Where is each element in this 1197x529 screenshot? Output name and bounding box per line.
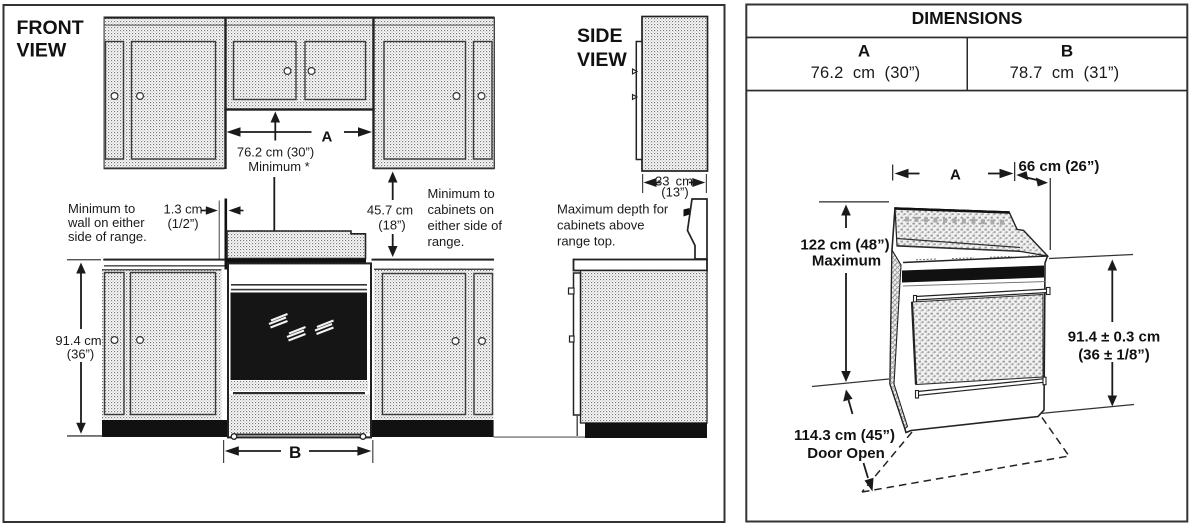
svg-text:76.2 cm (30”): 76.2 cm (30”) [237, 145, 314, 160]
svg-text:45.7 cm: 45.7 cm [367, 203, 413, 218]
svg-text:1.3 cm: 1.3 cm [163, 202, 202, 217]
svg-text:114.3 cm (45”): 114.3 cm (45”) [794, 427, 895, 444]
svg-text:91.4 ± 0.3 cm: 91.4 ± 0.3 cm [1068, 329, 1160, 346]
svg-text:A: A [858, 42, 870, 61]
svg-text:FRONT: FRONT [17, 17, 84, 39]
svg-text:(36”): (36”) [67, 347, 94, 362]
svg-text:range top.: range top. [557, 234, 616, 249]
svg-text:76.2 cm (30”): 76.2 cm (30”) [811, 64, 921, 82]
svg-text:(13”): (13”) [661, 185, 688, 200]
svg-text:78.7 cm (31”): 78.7 cm (31”) [1010, 64, 1120, 82]
svg-text:either side of: either side of [428, 218, 503, 233]
svg-text:66 cm (26”): 66 cm (26”) [1019, 158, 1100, 175]
svg-text:B: B [1061, 42, 1073, 61]
svg-text:Minimum to: Minimum to [68, 201, 135, 216]
svg-text:side of range.: side of range. [68, 229, 147, 244]
svg-text:(36 ± 1/8”): (36 ± 1/8”) [1078, 347, 1150, 364]
svg-text:Maximum depth for: Maximum depth for [557, 202, 669, 217]
svg-text:Door Open: Door Open [807, 445, 885, 462]
svg-text:DIMENSIONS: DIMENSIONS [912, 8, 1023, 28]
svg-text:VIEW: VIEW [577, 49, 627, 71]
svg-text:A: A [950, 167, 961, 184]
svg-text:cabinets above: cabinets above [557, 218, 644, 233]
svg-text:SIDE: SIDE [577, 25, 623, 47]
svg-text:B: B [289, 443, 301, 462]
svg-text:122 cm (48”): 122 cm (48”) [800, 237, 889, 254]
svg-text:Minimum *: Minimum * [248, 159, 309, 174]
svg-text:(18”): (18”) [378, 218, 405, 233]
svg-text:Maximum: Maximum [812, 253, 881, 270]
svg-text:cabinets on: cabinets on [428, 202, 495, 217]
svg-text:Minimum to: Minimum to [428, 186, 495, 201]
svg-text:A: A [322, 129, 333, 146]
svg-text:wall on either: wall on either [67, 215, 145, 230]
svg-text:VIEW: VIEW [17, 40, 67, 62]
svg-text:(1/2”): (1/2”) [167, 216, 198, 231]
svg-text:range.: range. [428, 234, 465, 249]
